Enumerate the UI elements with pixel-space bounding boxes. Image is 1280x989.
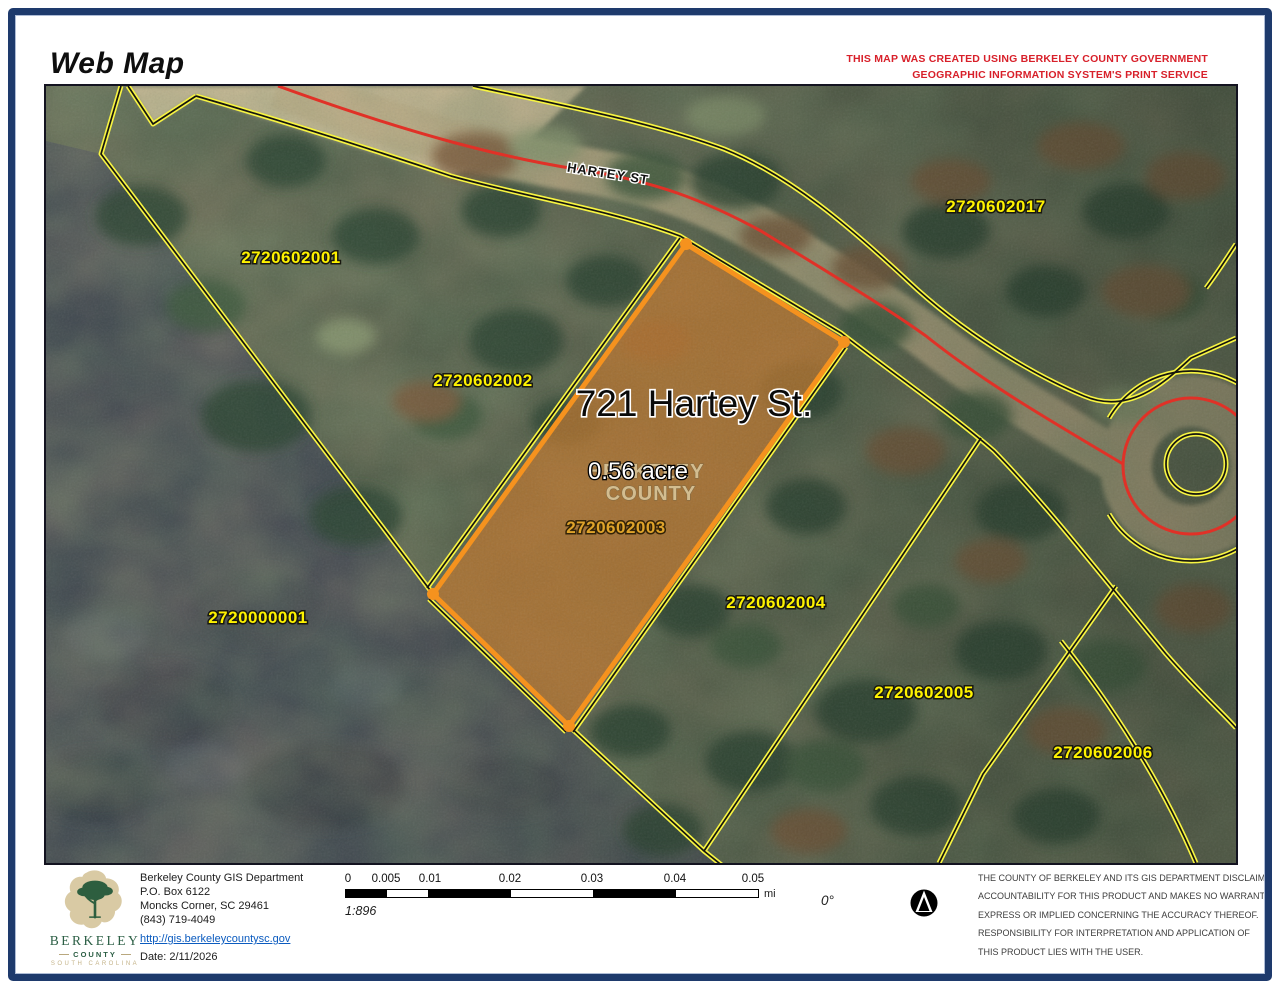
parcel-label-2720602002: 2720602002 (433, 371, 533, 390)
parcel-label-2720602006: 2720602006 (1053, 743, 1153, 762)
disclaimer-line: RESPONSIBILITY FOR INTERPRETATION AND AP… (978, 924, 1240, 942)
disclaimer-line: ACCOUNTABILITY FOR THIS PRODUCT AND MAKE… (978, 887, 1240, 905)
county-logo-graphic (50, 868, 140, 932)
parcel-label-2720000001: 2720000001 (208, 608, 308, 627)
scale-unit: mi (764, 888, 776, 900)
gis-website-link[interactable]: http://gis.berkeleycountysc.gov (140, 932, 290, 946)
disclaimer-line: EXPRESS OR IMPLIED CONCERNING THE ACCURA… (978, 906, 1240, 924)
department-line: Moncks Corner, SC 29461 (140, 899, 303, 913)
map-canvas: HARTEY ST 2720602001 2720602002 27206020… (44, 84, 1238, 865)
parcel-label-2720602004: 2720602004 (726, 593, 826, 612)
department-address-block: Berkeley County GIS Department P.O. Box … (140, 871, 303, 964)
berkeley-county-logo: BERKELEY COUNTY SOUTH CAROLINA (47, 868, 143, 967)
gis-print-notice: THIS MAP WAS CREATED USING BERKELEY COUN… (846, 51, 1208, 83)
department-line: (843) 719-4049 (140, 913, 303, 927)
scale-tick: 0.02 (499, 873, 521, 885)
rotation-value: 0° (821, 893, 834, 908)
subject-area-label: 0.56 acre (588, 458, 688, 485)
department-line: Berkeley County GIS Department (140, 871, 303, 885)
scale-tick: 0.04 (664, 873, 686, 885)
web-map-page: Web Map THIS MAP WAS CREATED USING BERKE… (0, 0, 1280, 989)
scale-bar-segments (345, 889, 759, 898)
aerial-map: HARTEY ST 2720602001 2720602002 27206020… (46, 86, 1236, 863)
scale-tick: 0.03 (581, 873, 603, 885)
parcel-label-2720602001: 2720602001 (241, 248, 341, 267)
scale-bar: 0 0.005 0.01 0.02 0.03 0.04 0.05 mi 1:89… (345, 873, 790, 918)
logo-text-state: SOUTH CAROLINA (47, 961, 143, 967)
north-arrow-icon (907, 886, 941, 923)
gis-print-notice-line2: GEOGRAPHIC INFORMATION SYSTEM'S PRINT SE… (846, 67, 1208, 83)
parcel-label-2720602017: 2720602017 (946, 197, 1046, 216)
disclaimer-line: THIS PRODUCT LIES WITH THE USER. (978, 943, 1240, 961)
county-watermark-line2: COUNTY (606, 483, 696, 505)
page-title: Web Map (50, 47, 185, 81)
department-line: P.O. Box 6122 (140, 885, 303, 899)
legal-disclaimer: THE COUNTY OF BERKELEY AND ITS GIS DEPAR… (978, 869, 1240, 961)
parcel-label-2720602003: 2720602003 (566, 518, 666, 537)
logo-text-county: COUNTY (47, 950, 143, 959)
scale-tick-labels: 0 0.005 0.01 0.02 0.03 0.04 0.05 (345, 873, 790, 887)
scale-ratio: 1:896 (345, 904, 790, 918)
subject-address-label: 721 Hartey St. (576, 383, 813, 424)
scale-tick: 0.05 (742, 873, 764, 885)
map-footer: BERKELEY COUNTY SOUTH CAROLINA Berkeley … (45, 866, 1235, 972)
scale-tick: 0.005 (372, 873, 401, 885)
scale-tick: 0 (345, 873, 351, 885)
logo-text-berkeley: BERKELEY (47, 933, 143, 949)
disclaimer-line: THE COUNTY OF BERKELEY AND ITS GIS DEPAR… (978, 869, 1240, 887)
map-date: Date: 2/11/2026 (140, 950, 303, 964)
gis-print-notice-line1: THIS MAP WAS CREATED USING BERKELEY COUN… (846, 51, 1208, 67)
scale-tick: 0.01 (419, 873, 441, 885)
parcel-label-2720602005: 2720602005 (874, 683, 974, 702)
